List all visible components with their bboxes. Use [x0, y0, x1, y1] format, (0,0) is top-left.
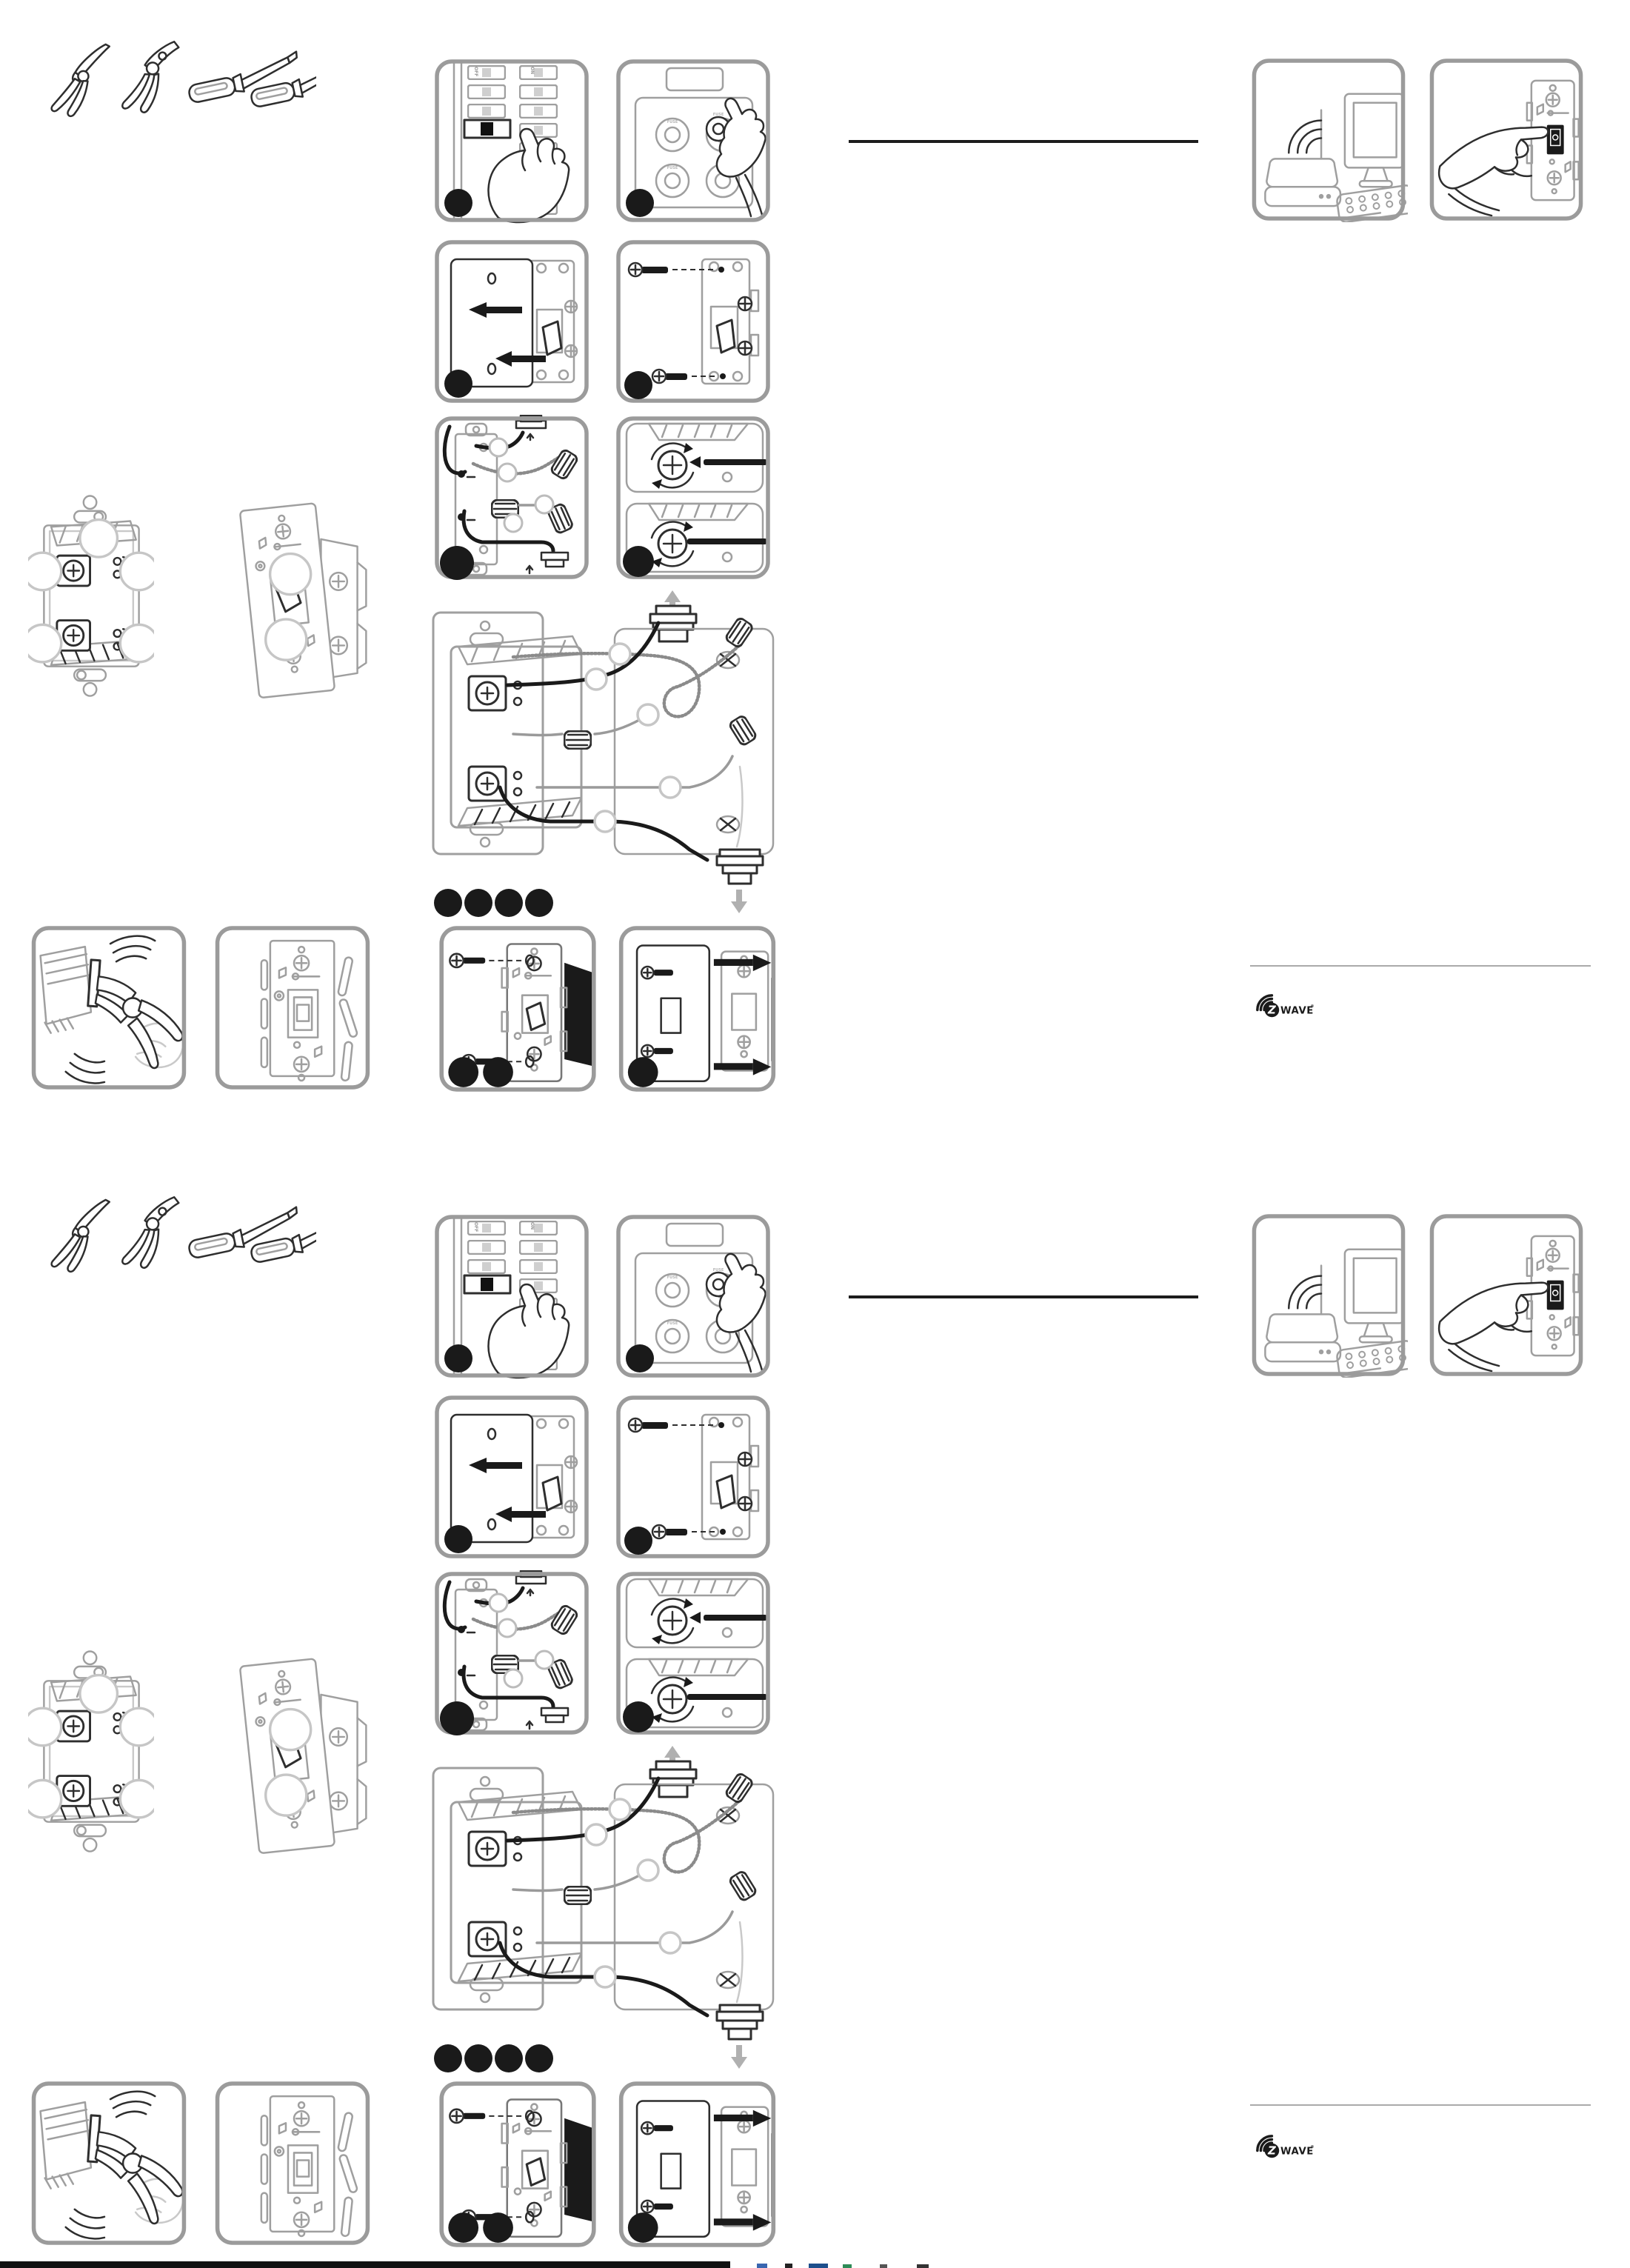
step-panel-wallplate-attach: [617, 2080, 778, 2249]
step-panel-wire-prep: [433, 1570, 590, 1736]
panel-hand-press-switch: [1427, 1213, 1586, 1378]
panel-plate-tabs: [210, 924, 375, 1091]
step-panel-wallplate-remove: [433, 1394, 590, 1560]
step-panel-switch-unscrew: [615, 1394, 772, 1560]
step-panel-wallplate-attach: [617, 924, 778, 1093]
step-panel-fuse-remove: [615, 58, 772, 224]
panel-hand-press-switch: [1427, 57, 1586, 222]
panel-hub-computer: [1249, 57, 1408, 222]
panel-pliers-snap: [24, 924, 194, 1091]
page-trim-bar: [0, 2261, 730, 2268]
device-side-view: [222, 493, 370, 707]
step-dot-row: [433, 888, 555, 918]
tools-illustration: [31, 41, 316, 130]
device-back-view: [28, 1648, 154, 1855]
step-panel-fuse-remove: [615, 1213, 772, 1379]
step-panel-breaker-off: [433, 58, 590, 224]
panel-pliers-snap: [24, 2080, 194, 2247]
section-divider-line: [849, 1295, 1198, 1298]
section-divider-line: [849, 140, 1198, 143]
step-panel-terminal-screws: [615, 415, 772, 581]
step-panel-switch-unscrew: [615, 239, 772, 404]
step-panel-wallplate-remove: [433, 239, 590, 404]
zwave-logo: [1247, 988, 1320, 1021]
step-panel-mount-screws: [435, 924, 600, 1093]
device-back-view: [28, 493, 154, 700]
panel-plate-tabs: [210, 2080, 375, 2247]
instruction-sheet-page: [0, 0, 1630, 2268]
step-dot-row: [433, 2044, 555, 2073]
zwave-section-rule: [1250, 965, 1591, 967]
zwave-section-rule: [1250, 2104, 1591, 2106]
instruction-half-top: [0, 0, 1630, 1134]
step-panel-mount-screws: [435, 2080, 600, 2249]
zwave-logo: [1247, 2129, 1320, 2161]
tools-illustration: [31, 1196, 316, 1285]
step-panel-breaker-off: [433, 1213, 590, 1379]
step-panel-wire-prep: [433, 415, 590, 581]
wiring-diagram-illustration: [426, 1744, 800, 2070]
panel-hub-computer: [1249, 1213, 1408, 1378]
step-panel-terminal-screws: [615, 1570, 772, 1736]
instruction-half-bottom: [0, 1155, 1630, 2268]
device-side-view: [222, 1648, 370, 1863]
wiring-diagram-illustration: [426, 589, 800, 915]
